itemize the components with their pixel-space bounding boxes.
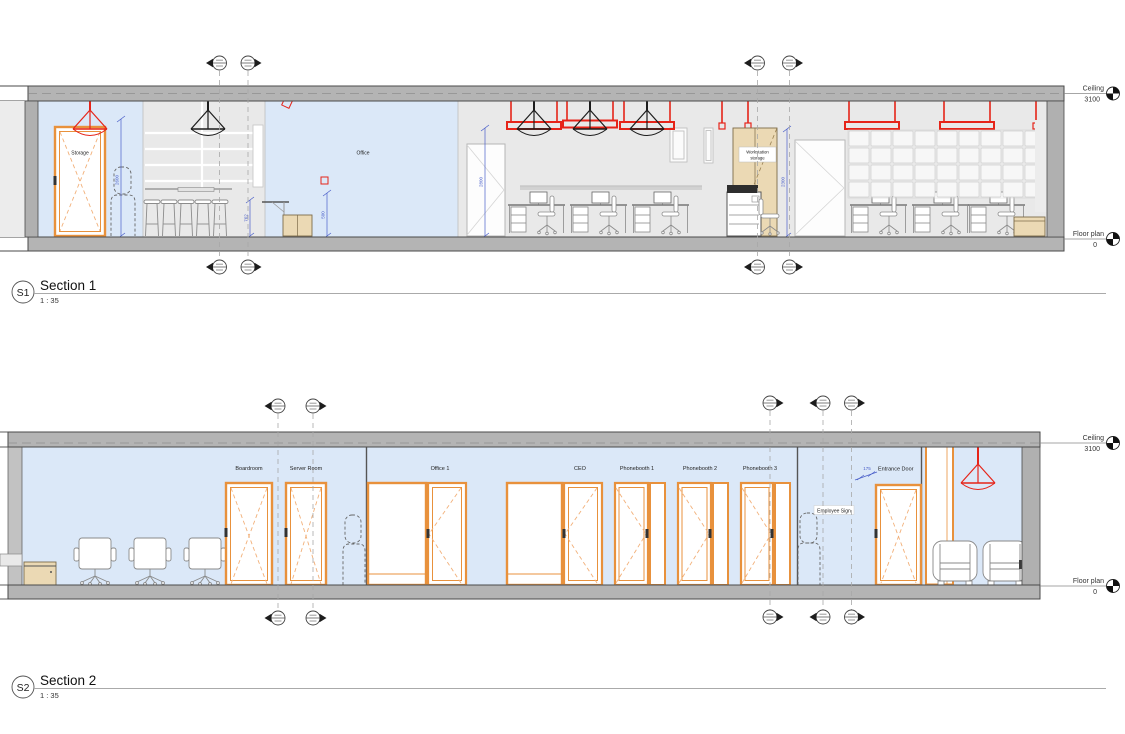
storage-door[interactable]	[54, 127, 106, 236]
level-datum-icon	[1107, 233, 1120, 246]
view-title: Section 2	[40, 673, 96, 688]
section-callout-marker[interactable]	[206, 56, 227, 70]
section-callout-marker[interactable]	[241, 56, 262, 70]
door-label-server-room: Server Room	[290, 466, 323, 472]
door-label-ceo: CEO	[574, 466, 587, 472]
svg-text:0: 0	[1093, 589, 1097, 596]
employee-sign-label: Employee Sign	[817, 509, 851, 515]
door-label-phonebooth1: Phonebooth 1	[620, 466, 654, 472]
office-label: Office	[357, 151, 370, 157]
section-callout-marker[interactable]	[306, 399, 327, 413]
ceiling-slab	[8, 432, 1040, 447]
view-title: Section 1	[40, 278, 96, 293]
svg-text:2300: 2300	[781, 176, 786, 187]
door-stop	[1019, 560, 1022, 569]
level-datum-icon	[1107, 87, 1120, 100]
drawing-canvas: Storage Office	[0, 0, 1125, 734]
svg-text:Ceiling: Ceiling	[1083, 86, 1105, 93]
right-wall-cut	[1022, 447, 1040, 585]
svg-text:175: 175	[863, 466, 871, 471]
interior-door[interactable]	[467, 144, 505, 236]
section-callout-marker[interactable]	[845, 396, 866, 410]
door-label-phonebooth3: Phonebooth 3	[743, 466, 777, 472]
view-tag: S1	[17, 287, 30, 299]
door-label-phonebooth2: Phonebooth 2	[683, 466, 717, 472]
door-label-boardroom: Boardroom	[235, 466, 263, 472]
level-datum-icon	[1107, 437, 1120, 450]
floor-slab	[28, 237, 1064, 251]
view-scale: 1 : 35	[40, 296, 59, 305]
section-callout-marker[interactable]	[306, 611, 327, 625]
right-wall-cut	[1047, 101, 1064, 237]
wall-shelving-grid	[848, 130, 1046, 198]
storage-label: Storage	[71, 151, 89, 157]
floor-slab	[8, 585, 1040, 599]
door-label-office1: Office 1	[431, 466, 450, 472]
ceo-glass-door[interactable]	[507, 483, 602, 585]
section-callout-marker[interactable]	[763, 610, 784, 624]
copier[interactable]	[727, 185, 761, 236]
svg-text:2800: 2800	[479, 176, 484, 187]
server-room-door[interactable]	[285, 483, 327, 585]
section-callout-marker[interactable]	[783, 260, 804, 274]
left-wall-cut	[25, 101, 38, 237]
section-callout-marker[interactable]	[845, 610, 866, 624]
ceiling-level-tag[interactable]: Ceiling 3100	[1040, 435, 1120, 453]
section-callout-marker[interactable]	[241, 260, 262, 274]
view-tag: S2	[17, 682, 30, 694]
ceiling-level-tag[interactable]: Ceiling 3100	[1064, 86, 1120, 104]
section-callout-marker[interactable]	[763, 396, 784, 410]
low-cabinet[interactable]	[283, 215, 312, 236]
tub-chair[interactable]	[933, 541, 977, 585]
section-callout-marker[interactable]	[265, 611, 286, 625]
ledge	[0, 554, 22, 566]
office1-glass-door[interactable]	[368, 483, 466, 585]
phonebooth2-door[interactable]	[678, 483, 728, 585]
svg-text:Floor plan: Floor plan	[1073, 578, 1104, 585]
svg-text:3100: 3100	[1084, 446, 1100, 453]
interior-door[interactable]	[795, 140, 845, 236]
floor-level-tag[interactable]: Floor plan 0	[1040, 578, 1120, 596]
section-callout-marker[interactable]	[810, 396, 831, 410]
entrance-door[interactable]	[875, 485, 922, 585]
svg-text:Ceiling: Ceiling	[1083, 435, 1105, 442]
section-2-view: Boardroom Server Room Office 1 CEO Phone…	[0, 396, 1120, 625]
level-datum-icon	[1107, 580, 1120, 593]
section-callout-marker[interactable]	[744, 56, 765, 70]
bar-end-panel	[253, 125, 263, 187]
boardroom-door[interactable]	[225, 483, 273, 585]
phonebooth1-door[interactable]	[615, 483, 665, 585]
phonebooth3-door[interactable]	[741, 483, 790, 585]
low-cabinet[interactable]	[24, 562, 56, 585]
floor-level-tag[interactable]: Floor plan 0	[1064, 231, 1120, 249]
section-2-title[interactable]: S2 Section 2 1 : 35	[12, 673, 1106, 700]
view-scale: 1 : 35	[40, 691, 59, 700]
svg-text:500: 500	[321, 211, 326, 219]
svg-text:3100: 3100	[1084, 97, 1100, 104]
section-callout-marker[interactable]	[265, 399, 286, 413]
section-callout-marker[interactable]	[206, 260, 227, 274]
svg-text:2600: 2600	[115, 174, 120, 185]
section-1-title[interactable]: S1 Section 1 1 : 35	[12, 278, 1106, 305]
svg-text:0: 0	[1093, 242, 1097, 249]
section-1-view: Storage Office	[0, 56, 1120, 274]
low-cabinet[interactable]	[1014, 217, 1045, 236]
section-callout-marker[interactable]	[783, 56, 804, 70]
section-callout-marker[interactable]	[810, 610, 831, 624]
door-label-entrance: Entrance Door	[878, 467, 914, 473]
svg-text:Floor plan: Floor plan	[1073, 231, 1104, 238]
section-callout-marker[interactable]	[744, 260, 765, 274]
